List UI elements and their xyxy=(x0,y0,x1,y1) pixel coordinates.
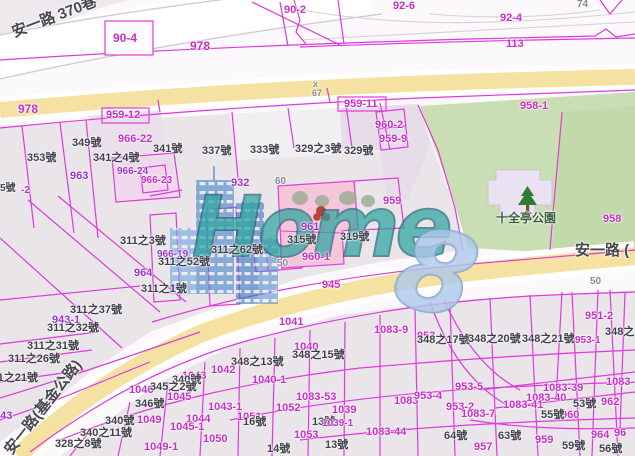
parcel-pinktint xyxy=(112,155,178,203)
base-map-layer: Home 8 xyxy=(0,0,635,456)
map-canvas[interactable]: Home 8 安一路 370巷安一路 (安一路(基金公路)十全亭公園90-497… xyxy=(0,0,635,456)
